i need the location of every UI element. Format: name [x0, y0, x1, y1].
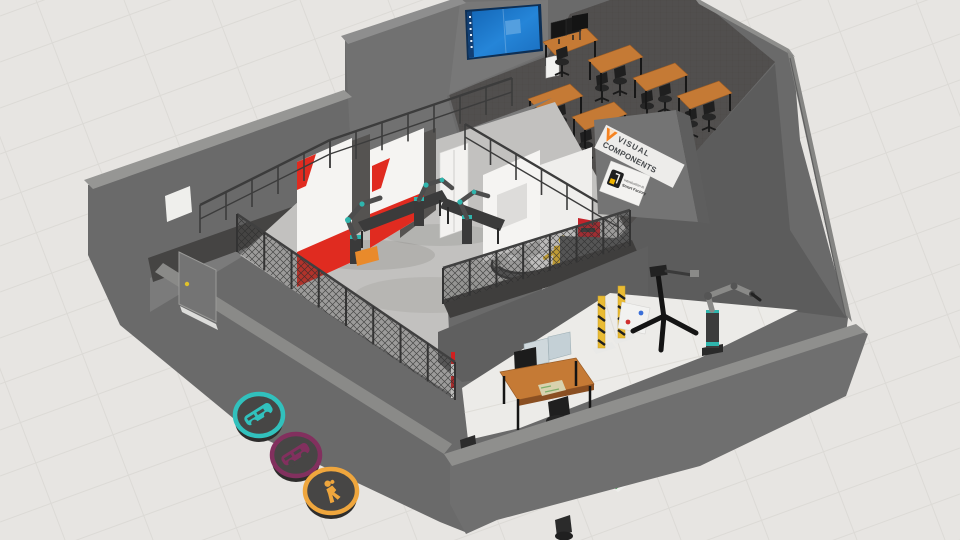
- scene-canvas: VISUAL COMPONENTS Introduction to Smart …: [0, 0, 960, 540]
- red-dot: [626, 320, 631, 325]
- agv-marker-teal[interactable]: [235, 394, 283, 442]
- door-handle[interactable]: [185, 282, 189, 286]
- pedestrian-marker-orange[interactable]: [305, 469, 357, 519]
- simulation-viewport[interactable]: VISUAL COMPONENTS Introduction to Smart …: [0, 0, 960, 540]
- presentation-screen[interactable]: [465, 4, 543, 60]
- blue-dot: [639, 311, 644, 316]
- wall-display[interactable]: [572, 13, 588, 31]
- windows-logo: [505, 19, 521, 35]
